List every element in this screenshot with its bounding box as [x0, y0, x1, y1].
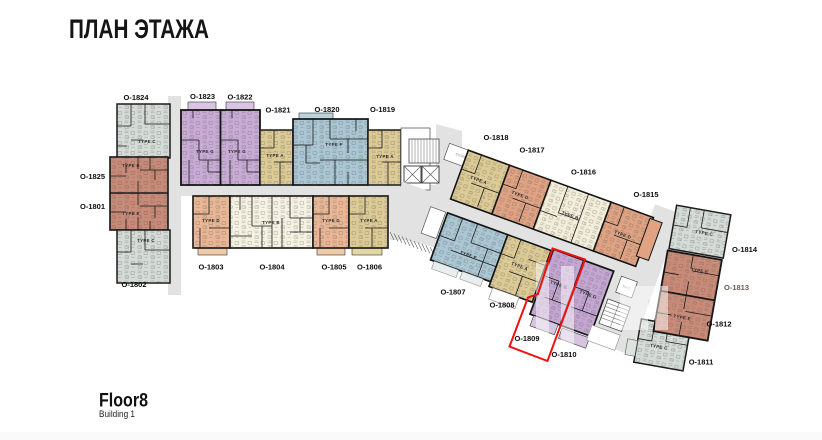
svg-text:TYPE A: TYPE A [360, 218, 378, 223]
svg-text:O-1822: O-1822 [227, 93, 252, 102]
svg-text:TYPE F: TYPE F [325, 142, 342, 147]
svg-text:O-1814: O-1814 [732, 245, 758, 254]
svg-text:O-1806: O-1806 [357, 263, 382, 272]
svg-text:O-1820: O-1820 [314, 105, 339, 114]
svg-text:O-1809: O-1809 [514, 334, 539, 343]
svg-text:O-1816: O-1816 [571, 168, 596, 177]
svg-text:O-1810: O-1810 [551, 350, 576, 359]
svg-text:O-1805: O-1805 [321, 263, 346, 272]
svg-text:O-1807: O-1807 [440, 288, 465, 297]
svg-text:ПЛАН ЭТАЖА: ПЛАН ЭТАЖА [69, 14, 209, 44]
svg-text:O-1813: O-1813 [724, 283, 749, 292]
svg-text:TYPE G: TYPE G [228, 149, 246, 154]
svg-text:TYPE E: TYPE E [122, 211, 139, 216]
svg-text:TYPE C: TYPE C [138, 139, 156, 144]
svg-text:TYPE D: TYPE D [322, 218, 340, 223]
svg-text:O-1819: O-1819 [370, 105, 395, 114]
svg-text:Building 1: Building 1 [99, 409, 135, 420]
svg-text:O-1824: O-1824 [123, 93, 149, 102]
svg-text:O-1812: O-1812 [706, 320, 731, 329]
svg-text:O-1802: O-1802 [121, 280, 146, 289]
svg-text:O-1803: O-1803 [198, 263, 223, 272]
svg-text:TYPE B: TYPE B [262, 220, 280, 225]
svg-text:TYPE C: TYPE C [137, 238, 155, 243]
svg-text:TYPE D: TYPE D [202, 218, 220, 223]
svg-text:O-1823: O-1823 [190, 92, 215, 101]
svg-text:TYPE A: TYPE A [376, 154, 394, 159]
svg-text:O-1801: O-1801 [80, 202, 105, 211]
svg-text:TYPE E: TYPE E [122, 163, 139, 168]
svg-text:O-1821: O-1821 [265, 106, 290, 115]
svg-text:O-1817: O-1817 [519, 146, 544, 155]
svg-text:O-1804: O-1804 [259, 263, 285, 272]
svg-text:O-1811: O-1811 [689, 358, 714, 367]
svg-text:TYPE A: TYPE A [266, 153, 284, 158]
svg-text:TYPE G: TYPE G [196, 149, 214, 154]
svg-text:O-1818: O-1818 [483, 133, 508, 142]
svg-text:O-1808: O-1808 [489, 301, 514, 310]
svg-text:O-1815: O-1815 [633, 190, 658, 199]
svg-text:O-1825: O-1825 [80, 172, 105, 181]
